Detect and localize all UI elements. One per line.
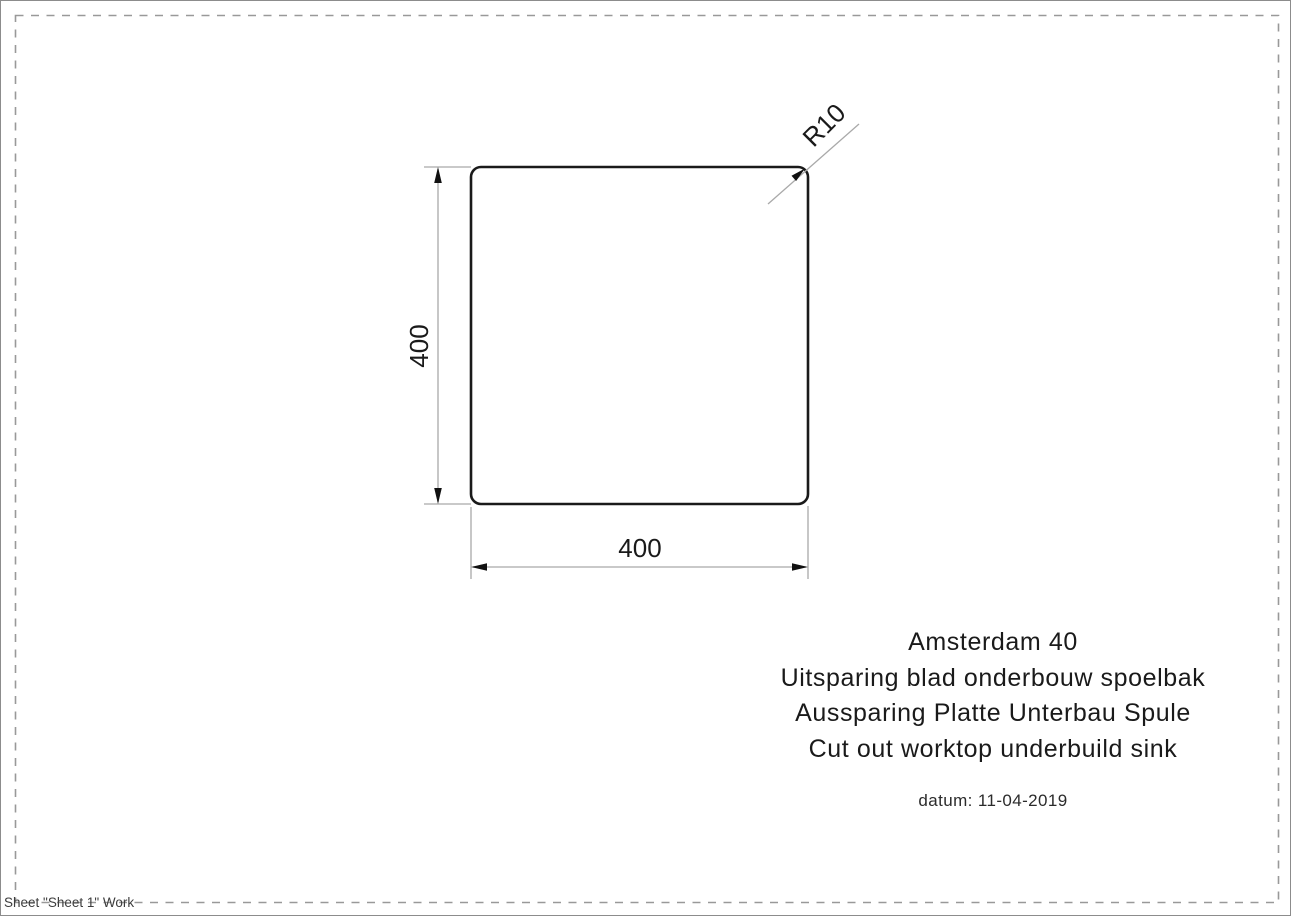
sheet-label: Sheet "Sheet 1" Work <box>4 895 134 910</box>
arrow-left-icon <box>471 563 487 571</box>
date-label: datum: 11-04-2019 <box>733 791 1253 811</box>
description-en: Cut out worktop underbuild sink <box>733 732 1253 768</box>
description-de: Aussparing Platte Unterbau Spule <box>733 696 1253 732</box>
title-block: Amsterdam 40 Uitsparing blad onderbouw s… <box>733 625 1253 811</box>
description-nl: Uitsparing blad onderbouw spoelbak <box>733 661 1253 697</box>
product-name: Amsterdam 40 <box>733 625 1253 661</box>
arrow-down-icon <box>434 488 442 504</box>
cutout-outline <box>471 167 808 504</box>
drawing-sheet: 400 400 R10 Amsterdam 40 Uitsparing blad… <box>0 0 1291 916</box>
height-dimension-label: 400 <box>404 324 434 367</box>
arrow-up-icon <box>434 167 442 183</box>
arrow-right-icon <box>792 563 808 571</box>
radius-dimension-label: R10 <box>797 98 852 153</box>
width-dimension-label: 400 <box>618 533 661 563</box>
